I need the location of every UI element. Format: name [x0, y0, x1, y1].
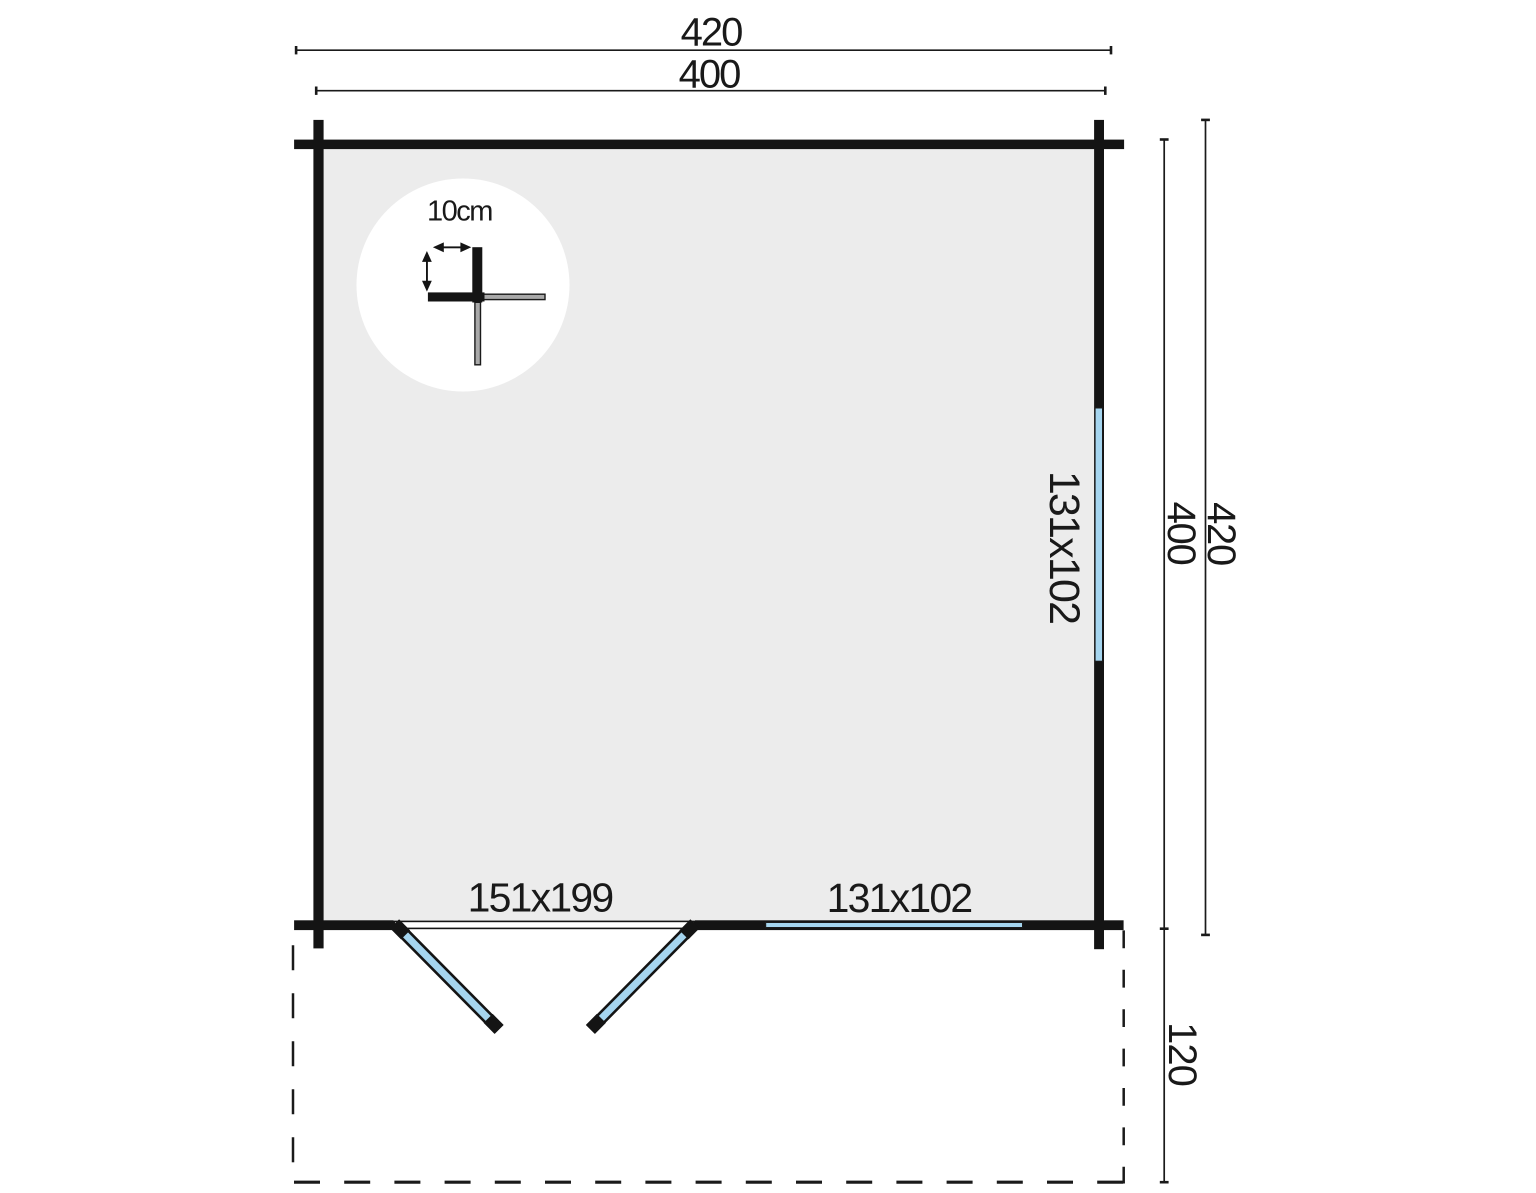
svg-text:400: 400 — [679, 52, 740, 96]
svg-text:420: 420 — [1199, 502, 1243, 565]
svg-text:420: 420 — [681, 10, 742, 54]
svg-text:400: 400 — [1159, 502, 1203, 565]
svg-text:120: 120 — [1160, 1022, 1204, 1086]
svg-text:131x102: 131x102 — [1040, 471, 1088, 623]
svg-text:131x102: 131x102 — [827, 875, 972, 921]
svg-text:151x199: 151x199 — [468, 875, 613, 921]
svg-text:10cm: 10cm — [427, 196, 492, 228]
